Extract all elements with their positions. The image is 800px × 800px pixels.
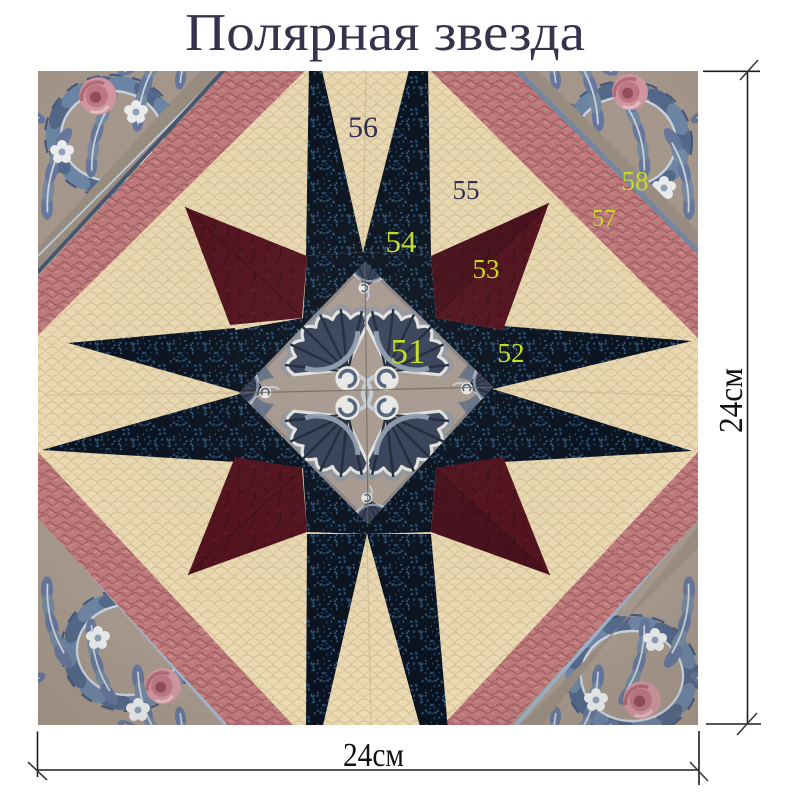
svg-text:24см: 24см <box>343 737 404 774</box>
svg-text:55: 55 <box>453 175 480 205</box>
svg-text:Полярная звезда: Полярная звезда <box>185 4 585 62</box>
svg-text:56: 56 <box>348 111 378 144</box>
svg-text:58: 58 <box>622 166 649 196</box>
svg-text:52: 52 <box>498 338 525 368</box>
svg-text:54: 54 <box>386 224 418 259</box>
svg-text:57: 57 <box>592 206 616 232</box>
svg-text:53: 53 <box>473 254 500 284</box>
svg-text:24см: 24см <box>713 368 750 433</box>
svg-text:51: 51 <box>391 332 426 371</box>
